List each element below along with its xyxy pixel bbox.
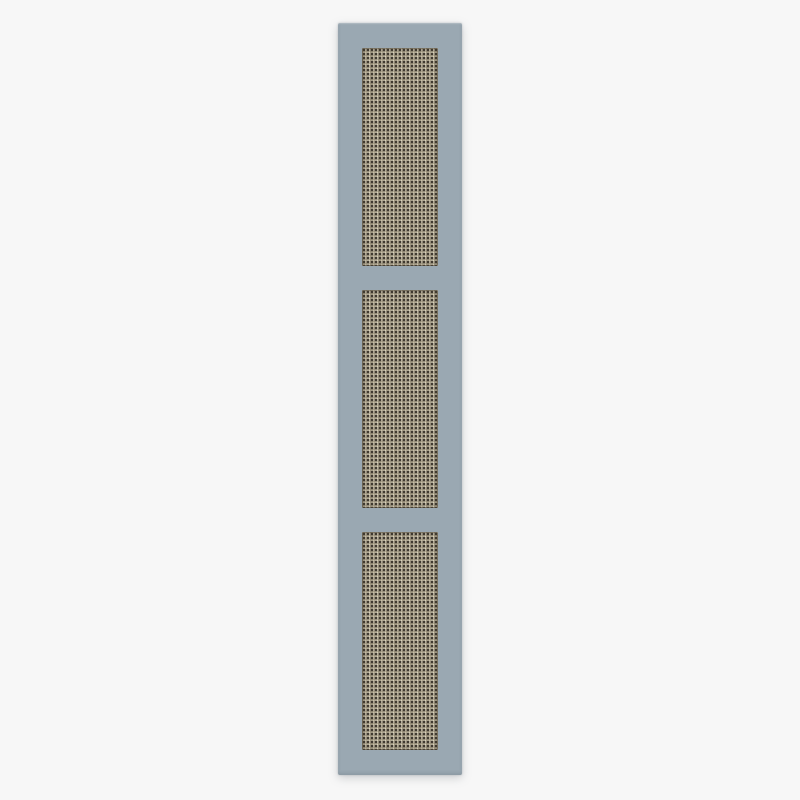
panel-frame <box>338 23 462 775</box>
cane-webbing-insert-top <box>362 48 438 266</box>
cane-webbing-insert-bottom <box>362 532 438 750</box>
product-photo-backdrop <box>0 0 800 800</box>
cane-webbing-insert-middle <box>362 290 438 508</box>
